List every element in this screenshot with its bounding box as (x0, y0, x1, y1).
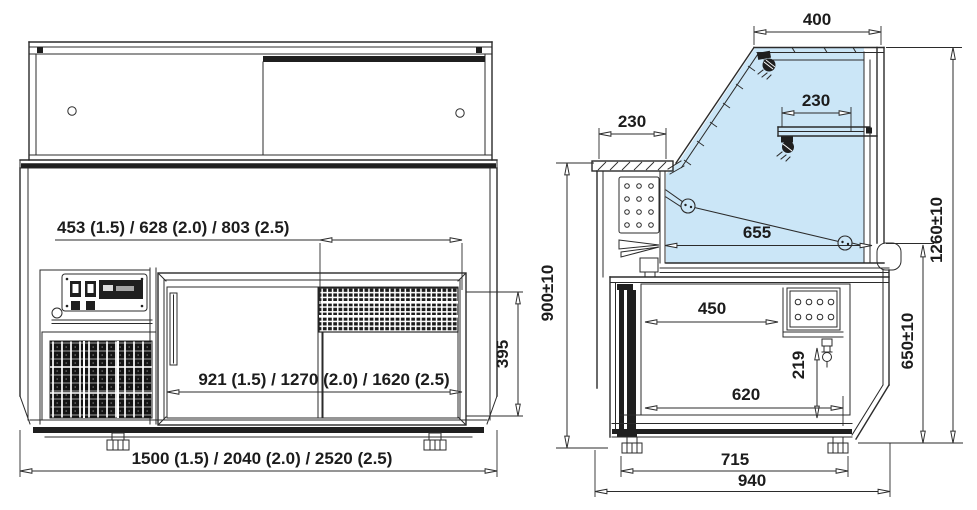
superstructure-sliding-glass (20, 42, 497, 160)
rail-end-cap-right (476, 47, 482, 53)
drain-fitting (822, 339, 832, 367)
dim-worktop-height: 900±10 (538, 265, 557, 322)
dim-overall-depth: 940 (738, 471, 766, 490)
dim-drain-height: 219 (789, 351, 808, 379)
rear-air-grille (319, 288, 458, 332)
dim-door-height: 395 (493, 340, 512, 368)
dim-overall-height: 1260±10 (927, 197, 946, 263)
counter-top-band (20, 160, 497, 168)
base-plinth (612, 429, 852, 434)
rear-sliding-door-section (158, 273, 466, 425)
counter-edge-profile (877, 243, 901, 270)
worktop-ledge (592, 161, 673, 171)
base-sliding-door (617, 284, 637, 437)
dim-grille-width: 453 (1.5) / 628 (2.0) / 803 (2.5) (57, 218, 289, 237)
adjustable-feet-front (107, 433, 446, 450)
dim-base-inner-depth: 450 (698, 299, 726, 318)
control-panel (62, 274, 147, 311)
front-view: 453 (1.5) / 628 (2.0) / 803 (2.5) 921 (1… (20, 42, 523, 477)
dim-canopy-depth: 400 (803, 10, 831, 29)
dim-front-edge-height: 650±10 (898, 313, 917, 370)
dim-feet-spacing: 715 (721, 450, 749, 469)
rail-end-cap-left (37, 47, 43, 53)
return-air-grille (619, 177, 659, 233)
drawing-svg: 453 (1.5) / 628 (2.0) / 803 (2.5) 921 (1… (0, 0, 977, 510)
side-view: 400 230 230 655 900±10 450 219 (538, 10, 963, 497)
dim-shelf-depth: 230 (802, 91, 830, 110)
cable-gland (52, 308, 62, 318)
machine-compartment (40, 268, 156, 424)
sliding-door-left (167, 287, 322, 418)
dim-base-opening-depth: 620 (732, 385, 760, 404)
finger-hole-left (68, 107, 76, 115)
plinth-band (33, 427, 484, 433)
technical-drawing-canvas: 453 (1.5) / 628 (2.0) / 803 (2.5) 921 (1… (0, 0, 977, 510)
finger-hole-right (456, 109, 464, 117)
display-deck (660, 263, 889, 273)
dim-worktop-depth: 230 (618, 112, 646, 131)
condenser-grille (42, 332, 156, 420)
back-wall (864, 48, 901, 271)
base-cabinet (610, 270, 889, 453)
dim-door-width: 921 (1.5) / 1270 (2.0) / 1620 (2.5) (198, 370, 449, 389)
dim-display-deck-depth: 655 (743, 223, 771, 242)
rear-panel-top-rail (263, 56, 485, 62)
dim-overall-width: 1500 (1.5) / 2040 (2.0) / 2520 (2.5) (132, 449, 393, 468)
